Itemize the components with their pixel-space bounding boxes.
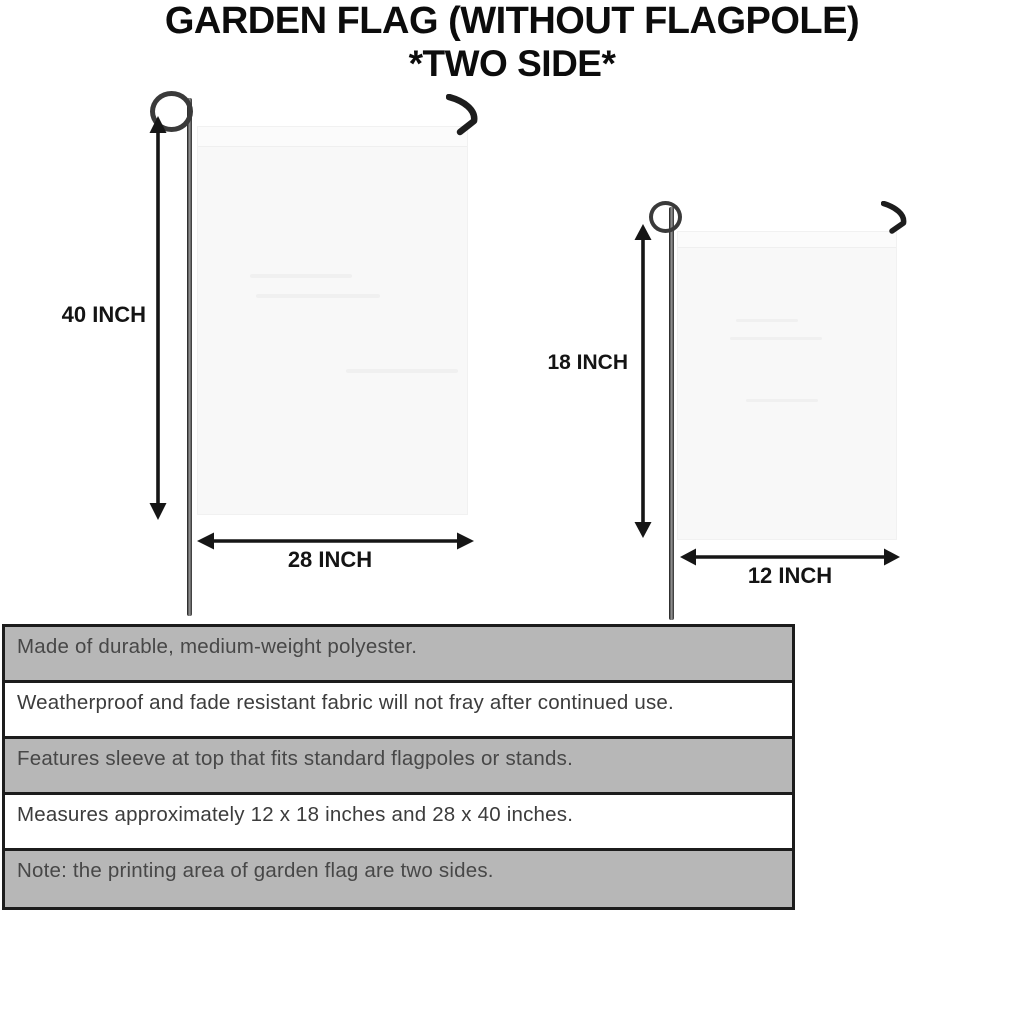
feature-text: Made of durable, medium-weight polyester… xyxy=(17,635,417,658)
feature-text: Measures approximately 12 x 18 inches an… xyxy=(17,803,573,826)
large-flag-width-label: 28 INCH xyxy=(230,547,430,573)
flagpole-rod-icon xyxy=(669,207,674,620)
large-flag-cloth xyxy=(197,126,468,515)
large-flag-height-label: 40 INCH xyxy=(30,302,146,328)
crease xyxy=(736,319,798,322)
small-flag-cloth xyxy=(677,231,897,540)
crease xyxy=(730,337,822,340)
page-title: GARDEN FLAG (WITHOUT FLAGPOLE) *TWO SIDE… xyxy=(0,2,1024,84)
flagpole-rod-icon xyxy=(187,98,192,616)
feature-text: Features sleeve at top that fits standar… xyxy=(17,747,573,770)
feature-row: Weatherproof and fade resistant fabric w… xyxy=(5,683,792,739)
flagpole-hook-icon xyxy=(881,201,910,235)
feature-row: Made of durable, medium-weight polyester… xyxy=(5,627,792,683)
height-dimension-arrow xyxy=(148,116,168,520)
height-dimension-arrow xyxy=(633,224,653,538)
feature-row: Measures approximately 12 x 18 inches an… xyxy=(5,795,792,851)
flagpole-loop-icon xyxy=(649,201,682,233)
large-flag-sleeve xyxy=(198,127,467,147)
crease xyxy=(250,274,352,278)
feature-text: Weatherproof and fade resistant fabric w… xyxy=(17,691,674,714)
feature-row: Note: the printing area of garden flag a… xyxy=(5,851,792,907)
crease xyxy=(256,294,380,298)
feature-text: Note: the printing area of garden flag a… xyxy=(17,859,494,882)
small-flag-height-label: 18 INCH xyxy=(512,351,628,375)
crease xyxy=(346,369,458,373)
features-table: Made of durable, medium-weight polyester… xyxy=(2,624,795,910)
small-flag-width-label: 12 INCH xyxy=(690,563,890,589)
feature-row: Features sleeve at top that fits standar… xyxy=(5,739,792,795)
title-line-1: GARDEN FLAG (WITHOUT FLAGPOLE) xyxy=(0,2,1024,42)
title-line-2: *TWO SIDE* xyxy=(0,45,1024,84)
small-flag-sleeve xyxy=(678,232,896,248)
flagpole-hook-icon xyxy=(446,94,482,136)
crease xyxy=(746,399,818,402)
